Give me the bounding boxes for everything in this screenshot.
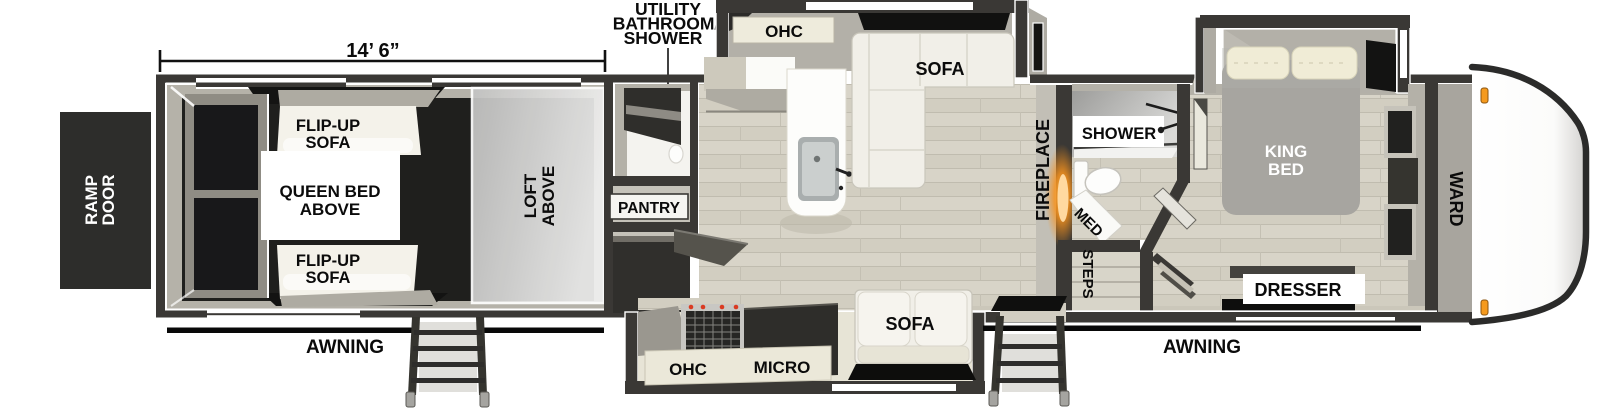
svg-text:AWNING: AWNING [1163, 337, 1241, 358]
svg-text:BED: BED [1268, 160, 1304, 179]
svg-text:SOFA: SOFA [306, 134, 351, 152]
svg-text:14’ 6”: 14’ 6” [346, 40, 399, 62]
svg-text:KING: KING [1265, 142, 1308, 161]
svg-text:DRESSER: DRESSER [1254, 280, 1341, 300]
svg-text:ABOVE: ABOVE [300, 200, 360, 219]
svg-text:MICRO: MICRO [754, 358, 811, 377]
svg-text:OHC: OHC [765, 22, 803, 41]
svg-text:FIREPLACE: FIREPLACE [1033, 119, 1053, 221]
svg-text:ABOVE: ABOVE [539, 166, 558, 226]
svg-text:SHOWER: SHOWER [1082, 125, 1156, 143]
svg-text:PANTRY: PANTRY [618, 200, 681, 217]
svg-text:WARD: WARD [1446, 172, 1466, 227]
svg-text:FLIP-UP: FLIP-UP [296, 117, 360, 135]
svg-text:OHC: OHC [669, 360, 707, 379]
svg-text:AWNING: AWNING [306, 337, 384, 358]
svg-text:DOOR: DOOR [99, 175, 118, 226]
svg-text:SHOWER: SHOWER [624, 28, 703, 48]
svg-text:SOFA: SOFA [915, 59, 964, 79]
svg-text:FLIP-UP: FLIP-UP [296, 252, 360, 270]
svg-text:STEPS: STEPS [1079, 249, 1096, 298]
svg-text:LOFT: LOFT [521, 173, 540, 218]
svg-text:QUEEN BED: QUEEN BED [279, 182, 380, 201]
svg-text:SOFA: SOFA [885, 314, 934, 334]
svg-text:SOFA: SOFA [306, 269, 351, 287]
